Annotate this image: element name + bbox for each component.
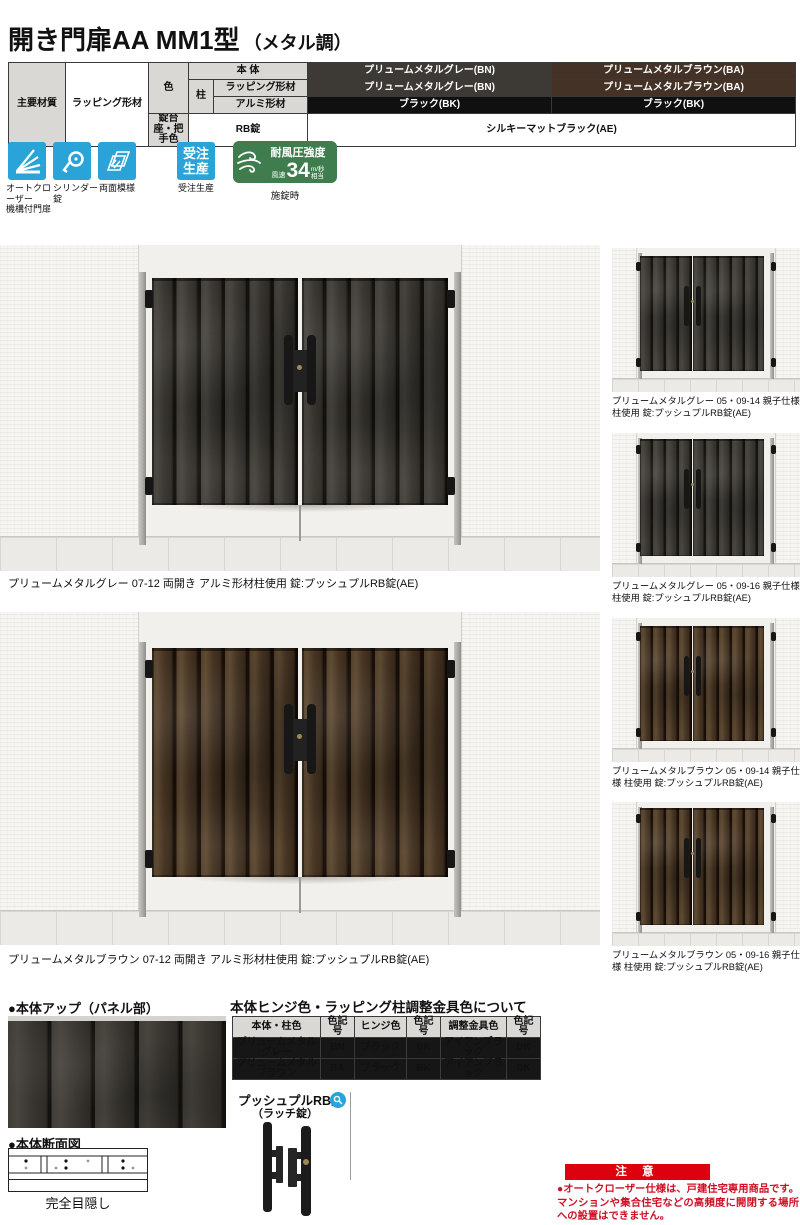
hinge-icon	[771, 445, 776, 454]
page-title-sub: （メタル調）	[244, 33, 352, 53]
gate-post-right	[454, 272, 461, 545]
wall-right	[775, 248, 800, 379]
cylinder-lock-label: シリンダー錠	[53, 183, 99, 204]
spec-body-gray-swatch: プリュームメタルグレー(BN)	[308, 63, 552, 80]
lock-plate	[293, 350, 307, 392]
hinge-color-table: 本体・柱色 色記号 ヒンジ色 色記号 調整金具色 色記号 プリュームメタルグレー…	[232, 1016, 541, 1080]
hinge-icon	[636, 358, 641, 367]
thumb-gray-0914: プリュームメタルグレー 05・09-14 親子仕様 柱使用 錠:プッシュプルRB…	[612, 248, 800, 419]
wall-left	[612, 248, 637, 379]
wall-left	[0, 612, 139, 915]
thumb-caption: プリュームメタルグレー 05・09-16 親子仕様 柱使用 錠:プッシュプルRB…	[612, 580, 800, 604]
wind-icon	[237, 148, 263, 176]
order-badge-line2: 生産	[183, 161, 209, 176]
keyhole	[691, 483, 694, 486]
tile-floor	[612, 378, 800, 392]
spec-body-label: 本 体	[189, 63, 308, 80]
spec-table: 主要材質 ラッピング形材 色 本 体 プリュームメタルグレー(BN) プリューム…	[8, 62, 796, 147]
gate-handle-left	[284, 704, 293, 774]
gate-handle-right	[696, 286, 701, 326]
double-sided-pattern-label: 両面模様	[99, 183, 143, 194]
wall-right	[775, 802, 800, 933]
wall-left	[612, 618, 637, 749]
hinge-icon	[636, 912, 641, 921]
gate-door-parent	[693, 256, 764, 371]
spec-body-brown-swatch: プリュームメタルブラウン(BA)	[552, 63, 796, 80]
panel-closeup-image	[8, 1016, 226, 1128]
hinge-top-right	[447, 660, 455, 678]
gate-handle-left	[684, 286, 689, 326]
hinge-icon	[771, 543, 776, 552]
spec-wrap-brown-swatch: プリュームメタルブラウン(BA)	[552, 80, 796, 97]
wind-badge-unit: m/秒	[311, 166, 325, 173]
thumb-caption: プリュームメタルブラウン 05・09-16 親子仕様 柱使用 錠:プッシュプルR…	[612, 949, 800, 973]
notice-text: ●オートクローザー仕様は、戸建住宅専用商品です。マンションや集合住宅などの高頻度…	[557, 1183, 799, 1224]
wall-right	[775, 433, 800, 564]
hinge-cell: BN	[321, 1038, 355, 1059]
spec-main-material-label: 主要材質	[9, 63, 66, 147]
keyhole	[691, 300, 694, 303]
hinge-th: 色記号	[321, 1017, 355, 1038]
thumb-caption: プリュームメタルグレー 05・09-14 親子仕様 柱使用 錠:プッシュプルRB…	[612, 395, 800, 419]
wind-badge-prefix: 風速	[271, 172, 285, 179]
double-sided-pattern-icon	[98, 142, 136, 180]
thumb-brown-0914: プリュームメタルブラウン 05・09-14 親子仕様 柱使用 錠:プッシュプルR…	[612, 618, 800, 789]
hinge-th: ヒンジ色	[355, 1017, 407, 1038]
hinge-cell: BK	[407, 1059, 441, 1080]
order-badge-line1: 受注	[183, 146, 209, 161]
thumb-brown-0916: プリュームメタルブラウン 05・09-16 親子仕様 柱使用 錠:プッシュプルR…	[612, 802, 800, 973]
hinge-color-heading: 本体ヒンジ色・ラッピング柱調整金具色について	[230, 996, 527, 1016]
cross-section-diagram	[8, 1148, 148, 1197]
hinge-icon	[771, 814, 776, 823]
hinge-icon	[771, 632, 776, 641]
lock-subtitle: （ラッチ錠）	[252, 1105, 318, 1121]
spec-wrap-label: ラッピング形材	[214, 80, 308, 97]
spec-color-label: 色	[149, 63, 189, 114]
wind-pressure-badge: 耐風圧強度 風速 34 m/秒 相当	[233, 141, 337, 183]
wall-left	[612, 802, 637, 933]
hinge-cell: ブラック	[355, 1038, 407, 1059]
hinge-icon	[636, 728, 641, 737]
auto-closer-label: オートクローザー 機構付門扉	[6, 183, 54, 215]
order-production-label: 受注生産	[175, 183, 217, 194]
wall-left	[0, 245, 139, 541]
thumb-caption: プリュームメタルブラウン 05・09-14 親子仕様 柱使用 錠:プッシュプルR…	[612, 765, 800, 789]
hinge-cell: BK	[407, 1038, 441, 1059]
spec-rb-value: シルキーマットブラック(AE)	[308, 114, 796, 147]
hinge-icon	[771, 728, 776, 737]
wind-badge-unit-suffix: 相当	[311, 173, 325, 180]
lock-plate	[293, 719, 307, 761]
hinge-cell: プリュームメタルブラウン	[233, 1059, 321, 1080]
hinge-bottom-left	[145, 477, 153, 495]
keyhole	[691, 670, 694, 673]
order-production-badge: 受注 生産	[177, 142, 215, 180]
hinge-th: 本体・柱色	[233, 1017, 321, 1038]
hinge-icon	[636, 262, 641, 271]
hinge-cell: プリュームメタルグレー	[233, 1038, 321, 1059]
hinge-cell: アイアンブラック	[441, 1059, 507, 1080]
hinge-bottom-left	[145, 850, 153, 868]
spec-alum-label: アルミ形材	[214, 97, 308, 114]
cross-section-caption: 完全目隠し	[8, 1193, 148, 1212]
hinge-bottom-right	[447, 477, 455, 495]
page-title: 開き門扉AA MM1型（メタル調）	[8, 20, 352, 57]
hinge-icon	[636, 543, 641, 552]
spec-main-material-value: ラッピング形材	[66, 63, 149, 147]
keyhole	[297, 734, 302, 739]
photo-brown-caption: プリュームメタルブラウン 07-12 両開き アルミ形材柱使用 錠:プッシュプル…	[8, 951, 598, 967]
hinge-row-gray: プリュームメタルグレー BN ブラック BK アイアンブラック DK	[233, 1038, 541, 1059]
section-divider	[350, 1092, 351, 1180]
photo-gray-gate	[0, 245, 600, 571]
hinge-top-right	[447, 290, 455, 308]
hinge-th: 調整金具色	[441, 1017, 507, 1038]
gate-door-left	[152, 648, 298, 877]
hinge-icon	[636, 814, 641, 823]
auto-closer-icon	[8, 142, 46, 180]
hinge-cell: BA	[321, 1059, 355, 1080]
hinge-icon	[636, 445, 641, 454]
wall-right	[461, 612, 600, 915]
gate-door-parent	[693, 439, 764, 556]
wall-right	[461, 245, 600, 541]
gate-door-right	[302, 648, 448, 877]
wind-badge-title: 耐風圧強度	[263, 144, 333, 160]
hinge-cell: ブラック	[355, 1059, 407, 1080]
thumb-gray-0916: プリュームメタルグレー 05・09-16 親子仕様 柱使用 錠:プッシュプルRB…	[612, 433, 800, 604]
gate-handle-left	[284, 335, 293, 405]
keyhole	[297, 365, 302, 370]
hinge-cell: DK	[507, 1038, 541, 1059]
hinge-bottom-right	[447, 850, 455, 868]
hinge-icon	[636, 632, 641, 641]
gate-handle-left	[684, 838, 689, 878]
keyhole	[691, 852, 694, 855]
spec-wrap-gray-swatch: プリュームメタルグレー(BN)	[308, 80, 552, 97]
hinge-cell: DK	[507, 1059, 541, 1080]
spec-alum-black-left: ブラック(BK)	[308, 97, 552, 114]
wall-left	[612, 433, 637, 564]
gate-post-left	[139, 642, 146, 917]
tile-floor	[612, 748, 800, 762]
gate-handle-right	[307, 704, 316, 774]
tile-floor	[612, 563, 800, 577]
tile-floor	[0, 536, 600, 571]
spec-alum-black-right: ブラック(BK)	[552, 97, 796, 114]
hinge-top-left	[145, 290, 153, 308]
spec-pillar-label: 柱	[189, 80, 214, 114]
push-pull-handles-image	[243, 1120, 343, 1223]
cylinder-lock-mini-icon	[330, 1092, 346, 1108]
wind-badge-value: 34	[286, 160, 309, 181]
wind-badge-caption: 施錠時	[233, 188, 337, 202]
drop-rod	[299, 877, 301, 913]
notice-title-bar: 注 意	[565, 1164, 710, 1180]
hinge-top-left	[145, 660, 153, 678]
gate-handle-left	[684, 656, 689, 696]
gate-door-left	[152, 278, 298, 505]
drop-rod	[299, 505, 301, 541]
wall-right	[775, 618, 800, 749]
hinge-row-brown: プリュームメタルブラウン BA ブラック BK アイアンブラック DK	[233, 1059, 541, 1080]
photo-gray-caption: プリュームメタルグレー 07-12 両開き アルミ形材柱使用 錠:プッシュプルR…	[8, 575, 598, 591]
cylinder-lock-icon	[53, 142, 91, 180]
gate-door-right	[302, 278, 448, 505]
hinge-th: 色記号	[407, 1017, 441, 1038]
body-up-heading: ●本体アップ（パネル部）	[8, 998, 159, 1017]
hinge-icon	[771, 912, 776, 921]
gate-handle-right	[696, 838, 701, 878]
gate-handle-right	[696, 469, 701, 509]
gate-door-parent	[693, 808, 764, 925]
gate-handle-left	[684, 469, 689, 509]
hinge-icon	[771, 262, 776, 271]
gate-post-right	[454, 642, 461, 917]
hinge-icon	[771, 358, 776, 367]
gate-post-left	[139, 272, 146, 545]
hinge-cell: アイアンブラック	[441, 1038, 507, 1059]
tile-floor	[612, 932, 800, 946]
tile-floor	[0, 910, 600, 945]
gate-handle-right	[696, 656, 701, 696]
gate-handle-right	[307, 335, 316, 405]
page-title-main: 開き門扉AA MM1型	[8, 25, 240, 55]
photo-brown-gate	[0, 612, 600, 945]
hinge-th: 色記号	[507, 1017, 541, 1038]
gate-door-parent	[693, 626, 764, 741]
